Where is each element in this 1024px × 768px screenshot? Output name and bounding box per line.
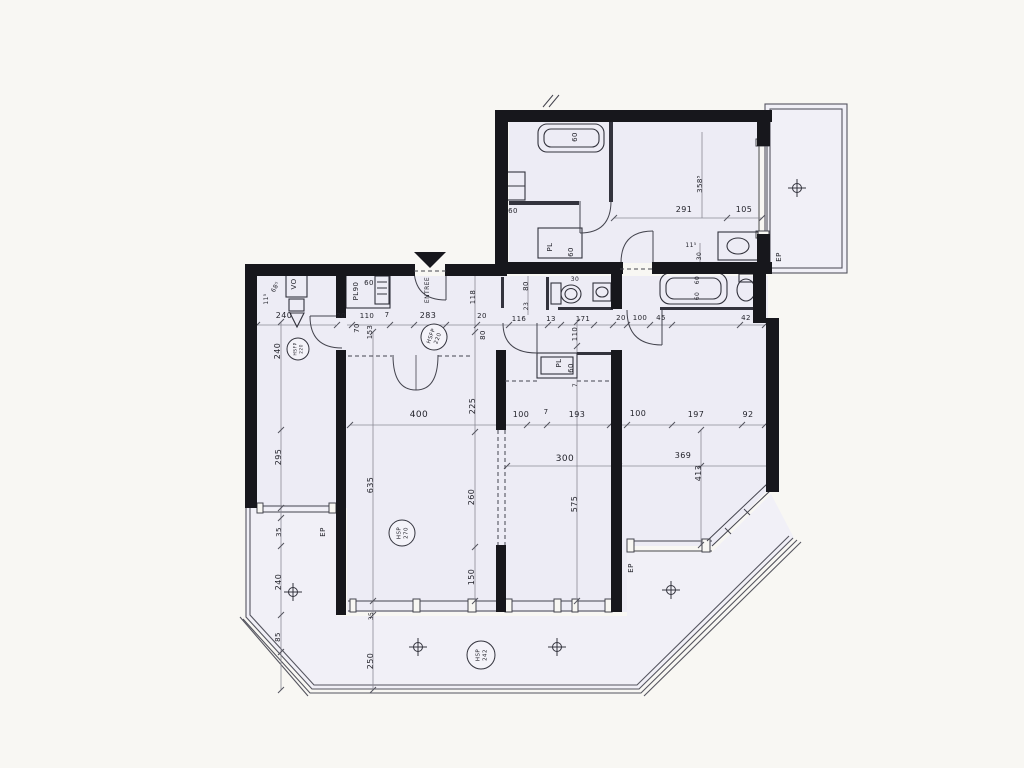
dim-label: 358⁵: [696, 175, 704, 193]
dim-label: 240: [276, 311, 292, 320]
dim-label: 100: [513, 410, 529, 419]
dim-label: 20: [616, 314, 626, 322]
dim-label: 60: [567, 363, 575, 373]
dim-label: 260: [467, 489, 476, 505]
dim-label: 60: [571, 132, 579, 142]
dim-label: 13: [546, 315, 556, 323]
dim-label: PL: [546, 243, 554, 252]
floorplan-drawing: HSFP220HSFP220HSP270HSP242 6060PL60358⁵2…: [0, 0, 1024, 768]
dim-label: 23: [523, 302, 530, 310]
dim-label: 413: [694, 465, 703, 481]
dim-label: 575: [570, 496, 579, 512]
dim-label: 225: [468, 398, 477, 414]
dim-label: 100: [630, 409, 646, 418]
dim-label: 116: [512, 315, 527, 323]
dim-label: 85: [274, 632, 282, 642]
dim-label: 7: [385, 311, 390, 319]
badge-line1: HSP: [476, 649, 482, 661]
dim-label: 60: [364, 279, 374, 287]
dim-label: 60: [508, 207, 518, 215]
dim-label: 250: [366, 653, 375, 669]
dim-label: 635: [366, 477, 375, 493]
dim-label: 45: [656, 314, 666, 322]
badge-line1: HSFP: [293, 342, 299, 355]
dim-label: 283: [420, 311, 436, 320]
dim-label: 80: [522, 281, 530, 291]
badge-line2: 220: [299, 344, 305, 354]
dim-label: 171: [576, 315, 591, 323]
dim-label: ENTREE: [424, 277, 431, 303]
dim-label: 30: [571, 276, 579, 283]
dim-label: 193: [569, 410, 585, 419]
dim-label: 110: [360, 312, 375, 320]
dim-label: 291: [676, 205, 692, 214]
dim-label: 80: [479, 330, 487, 340]
dim-label: 240: [274, 574, 283, 590]
dim-label: EP: [775, 252, 783, 261]
dim-label: 100: [633, 314, 648, 322]
dim-label: EP: [627, 563, 635, 572]
dim-label: 105: [736, 205, 752, 214]
dim-label: PL90: [352, 282, 360, 301]
dim-label: 240: [273, 343, 282, 359]
dim-label: 110: [571, 327, 579, 342]
badge-line2: 270: [404, 527, 410, 539]
dim-label: 35: [275, 527, 283, 537]
floorplan-scan: HSFP220HSFP220HSP270HSP242 6060PL60358⁵2…: [0, 0, 1024, 768]
dim-label: 30: [696, 252, 703, 260]
badge-line2: 242: [483, 649, 489, 661]
dim-label: 150: [467, 569, 476, 585]
dim-label: 295: [274, 449, 283, 465]
dim-label: 300: [556, 454, 574, 464]
dim-label: 60: [694, 276, 701, 284]
dim-label: VO: [290, 278, 298, 289]
dim-label: 35: [368, 612, 375, 620]
dim-label: 70: [353, 323, 361, 333]
dim-label: 118: [469, 290, 477, 305]
dim-label: 7: [572, 383, 579, 387]
dim-label: 153: [366, 325, 374, 340]
ceiling-height-badge: HSP270: [389, 520, 415, 546]
dim-label: 11⁵: [685, 242, 696, 249]
badge-line1: HSP: [397, 527, 403, 539]
dim-label: 20: [477, 312, 487, 320]
dim-label: 60: [567, 247, 575, 257]
dim-label: 197: [688, 410, 704, 419]
dim-label: 92: [743, 410, 754, 419]
dim-label: 11⁵: [263, 293, 270, 304]
dim-label: 60: [694, 292, 701, 300]
dim-label: EP: [319, 527, 327, 536]
dim-label: 20: [336, 312, 346, 320]
dim-label: 369: [675, 451, 691, 460]
ceiling-height-badge: HSP242: [467, 641, 495, 669]
dim-label: 7: [544, 408, 549, 416]
ceiling-height-badge: HSFP220: [287, 338, 309, 360]
dim-label: 400: [410, 410, 428, 420]
dim-label: PL: [555, 359, 563, 368]
dim-label: 42: [741, 314, 751, 322]
